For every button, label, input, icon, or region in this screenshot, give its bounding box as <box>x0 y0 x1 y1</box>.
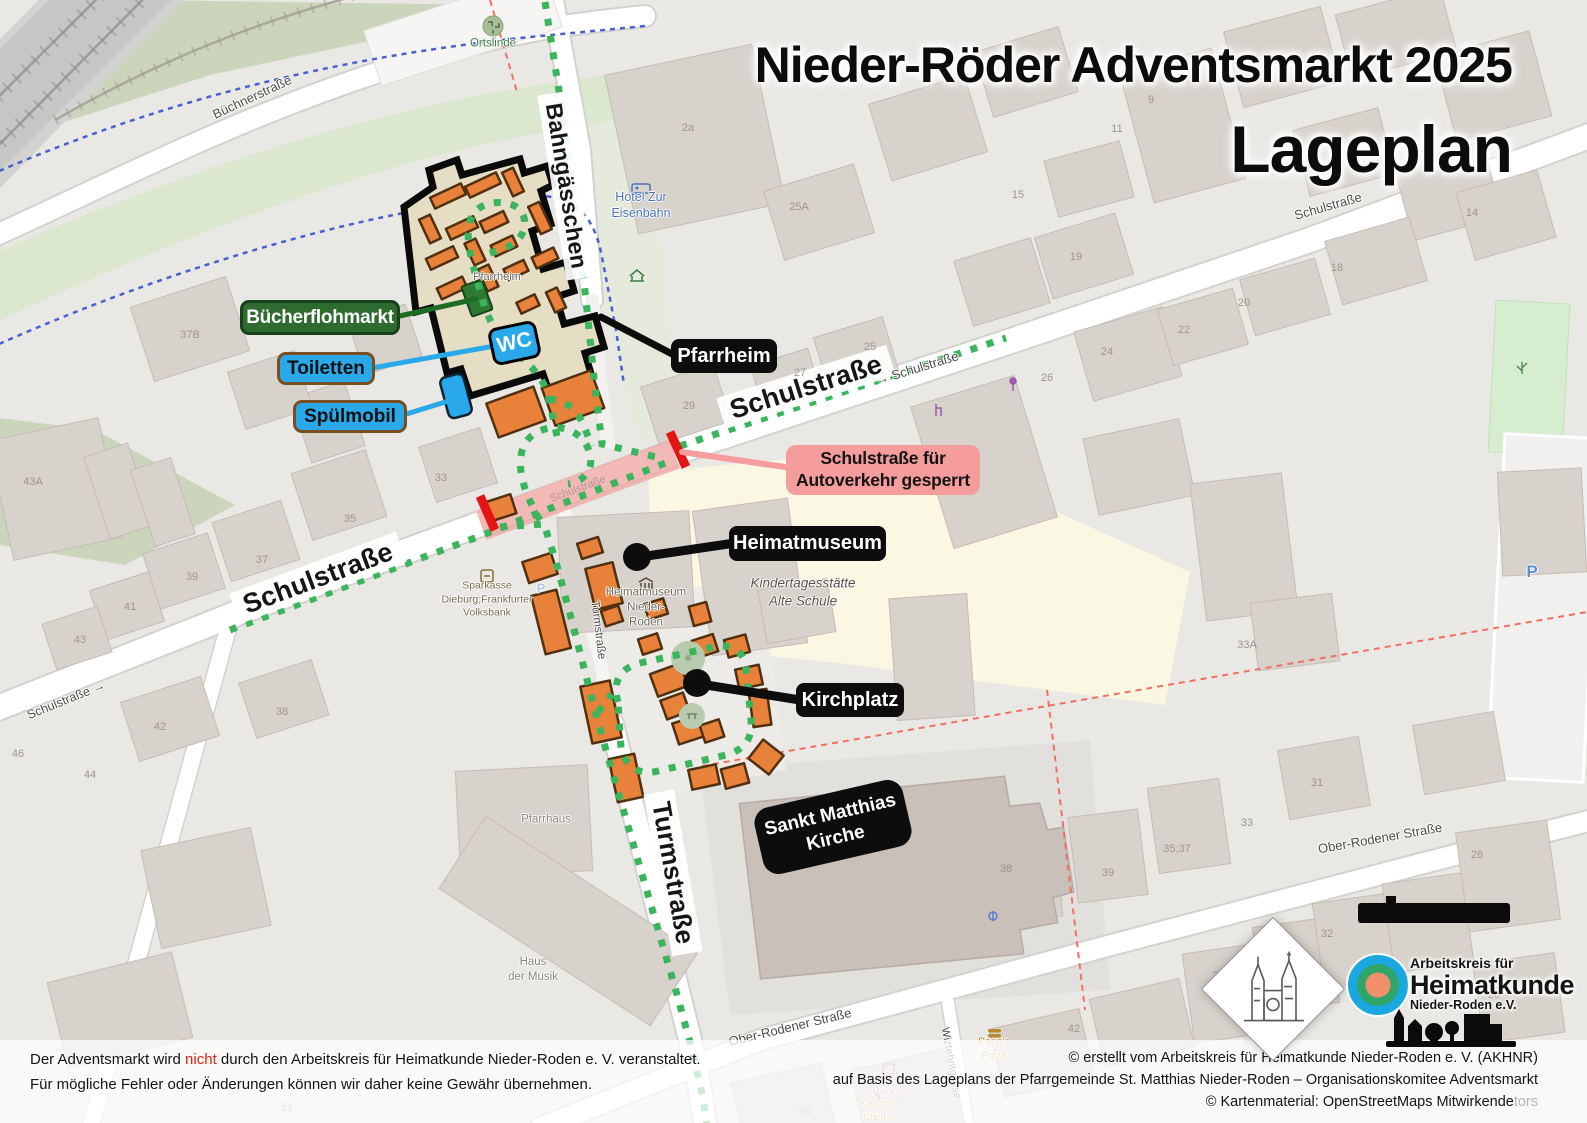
footer-credits: © erstellt vom Arbeitskreis für Heimatku… <box>833 1047 1538 1113</box>
buecherflohmarkt-label: Bücherflohmarkt <box>246 307 394 329</box>
poster-subtitle: Lageplan <box>755 111 1512 187</box>
heimatmuseum-callout: Heimatmuseum <box>729 526 886 561</box>
blocked-street-callout: Schulstraße für Autoverkehr gesperrt <box>786 445 980 495</box>
toiletten-label: Toiletten <box>287 358 365 380</box>
pfarrheim-label: Pfarrheim <box>677 345 770 368</box>
skyline-silhouette <box>1386 1004 1516 1050</box>
spuelmobil-callout: Spülmobil <box>293 400 407 433</box>
footer-disclaimer: Der Adventsmarkt wird nicht durch den Ar… <box>30 1047 701 1097</box>
blocked-street-line2: Autoverkehr gesperrt <box>796 470 970 492</box>
heimatmuseum-label: Heimatmuseum <box>733 532 882 555</box>
toiletten-callout: Toiletten <box>277 352 375 385</box>
logo-skyline-bar <box>1358 903 1510 923</box>
lageplan-poster: SchulstraßeSchulstraßeBahngässchenTurmst… <box>0 0 1587 1123</box>
buecherflohmarkt-callout: Bücherflohmarkt <box>240 300 400 335</box>
disclaimer-line1: Der Adventsmarkt wird nicht durch den Ar… <box>30 1047 701 1072</box>
bank-icon <box>481 570 493 582</box>
kirchplatz-label: Kirchplatz <box>802 689 899 712</box>
credits-line3: © Kartenmaterial: OpenStreetMaps Mitwirk… <box>833 1091 1538 1113</box>
blocked-street-line1: Schulstraße für <box>820 448 945 470</box>
logo-line1: Arbeitskreis für <box>1410 956 1574 971</box>
spuelmobil-label: Spülmobil <box>304 406 396 428</box>
poster-title: Nieder-Röder Adventsmarkt 2025 <box>755 38 1512 93</box>
disclaimer-nicht: nicht <box>185 1051 217 1068</box>
poster-title-block: Nieder-Röder Adventsmarkt 2025 Lageplan <box>755 38 1512 187</box>
logo-line2: Heimatkunde <box>1410 971 1574 999</box>
disclaimer-line2: Für mögliche Fehler oder Änderungen könn… <box>30 1072 701 1097</box>
wc-label: WC <box>495 328 534 359</box>
credits-line2: auf Basis des Lageplans der Pfarrgemeind… <box>833 1069 1538 1091</box>
pfarrheim-callout: Pfarrheim <box>671 339 777 373</box>
credits-line1: © erstellt vom Arbeitskreis für Heimatku… <box>833 1047 1538 1069</box>
osm-attribution-fragment: tors <box>1514 1094 1538 1110</box>
kirchplatz-callout: Kirchplatz <box>796 683 904 717</box>
church-sketch-icon <box>1224 939 1322 1037</box>
